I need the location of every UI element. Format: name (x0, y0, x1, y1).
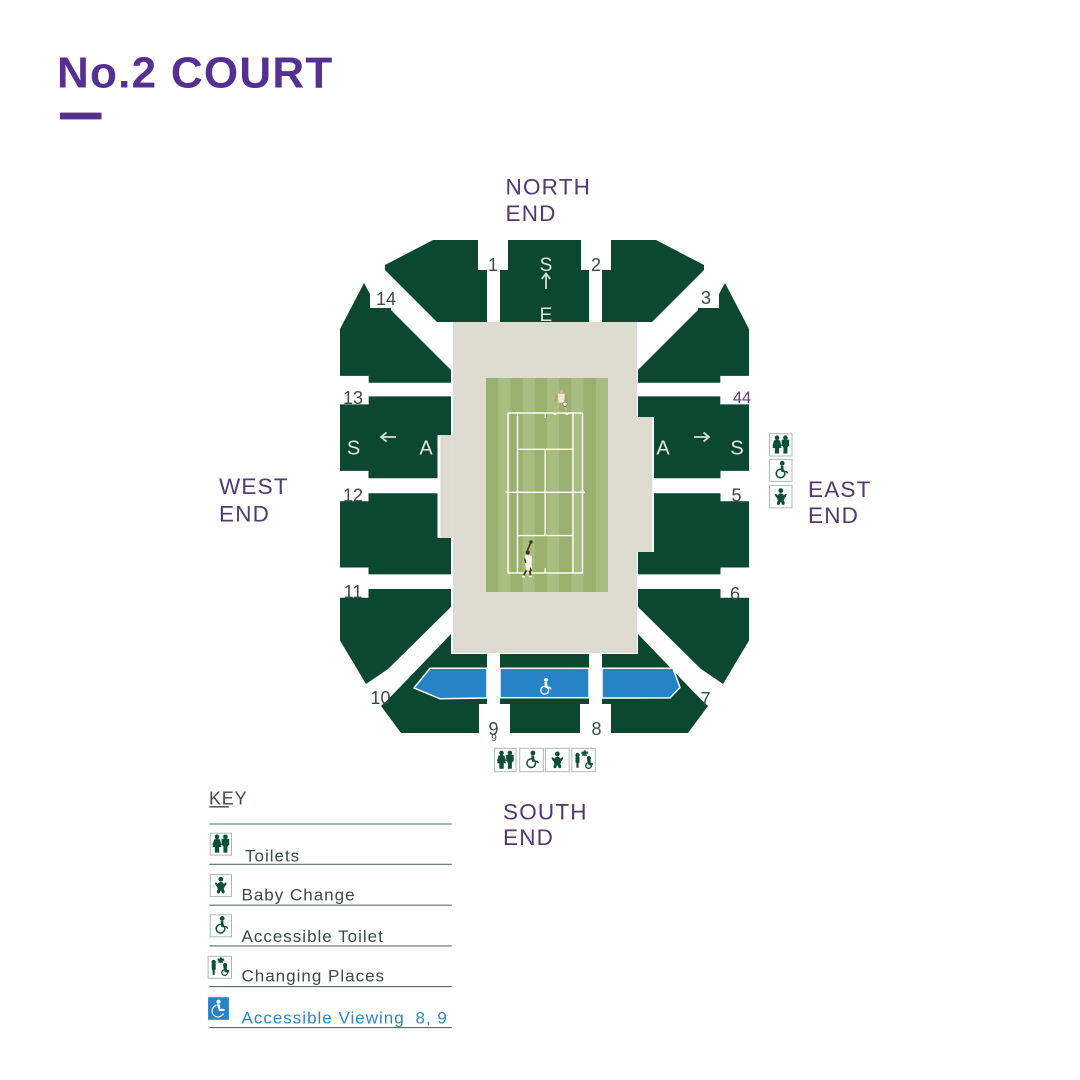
svg-text:13: 13 (343, 388, 363, 408)
svg-text:Accessible Viewing: Accessible Viewing (242, 1009, 405, 1028)
svg-text:END: END (219, 502, 270, 527)
svg-text:E: E (540, 305, 553, 326)
svg-text:11: 11 (344, 582, 363, 602)
svg-text:6: 6 (730, 584, 740, 604)
svg-text:END: END (506, 201, 557, 226)
svg-text:Baby Change: Baby Change (242, 886, 356, 905)
svg-text:WEST: WEST (219, 474, 289, 499)
svg-text:END: END (503, 825, 554, 850)
svg-text:EAST: EAST (808, 477, 872, 502)
svg-text:3: 3 (701, 288, 711, 308)
svg-text:8, 9: 8, 9 (416, 1009, 448, 1028)
svg-text:Accessible Toilet: Accessible Toilet (242, 927, 384, 946)
svg-text:44: 44 (733, 389, 751, 407)
svg-text:10: 10 (370, 688, 390, 708)
svg-text:12: 12 (343, 486, 363, 506)
svg-text:7: 7 (700, 689, 710, 709)
svg-text:END: END (808, 503, 859, 528)
svg-text:SOUTH: SOUTH (503, 800, 588, 825)
svg-text:NORTH: NORTH (506, 175, 592, 200)
svg-text:14: 14 (376, 289, 396, 309)
svg-text:8: 8 (591, 719, 601, 739)
svg-text:S: S (730, 438, 743, 460)
svg-text:No.2 COURT: No.2 COURT (57, 48, 334, 97)
svg-text:A: A (419, 438, 433, 460)
svg-text:S: S (347, 438, 360, 460)
svg-text:KEY: KEY (209, 789, 247, 809)
svg-text:2: 2 (591, 255, 601, 275)
svg-text:A: A (656, 438, 670, 460)
svg-text:9: 9 (491, 733, 497, 744)
svg-text:Toilets: Toilets (245, 847, 300, 866)
svg-text:Changing Places: Changing Places (242, 967, 386, 986)
svg-text:5: 5 (731, 486, 741, 506)
svg-text:1: 1 (488, 255, 498, 275)
